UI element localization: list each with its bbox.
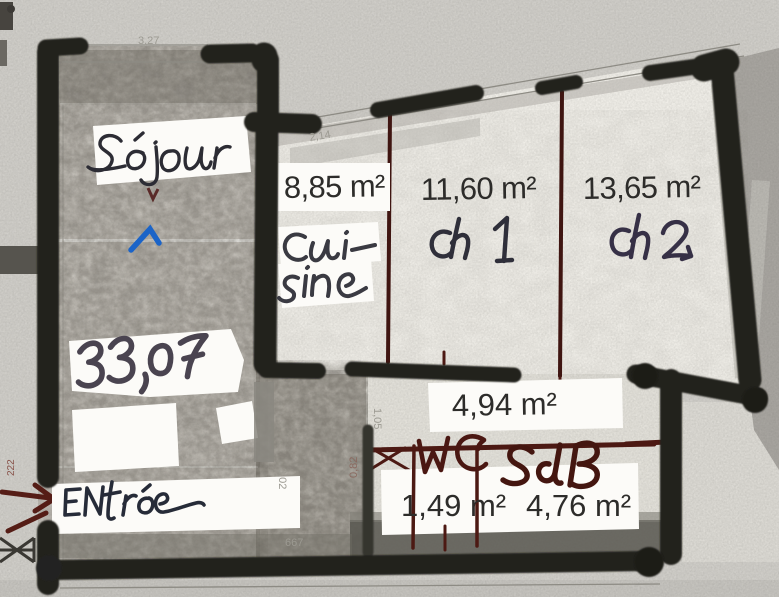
svg-text:4,94 m²: 4,94 m² [452, 386, 558, 423]
svg-text:4,76 m²: 4,76 m² [526, 488, 631, 523]
svg-text:8,85 m²: 8,85 m² [284, 168, 386, 205]
svg-text:3,27: 3,27 [138, 35, 159, 47]
svg-text:11,60 m²: 11,60 m² [421, 170, 537, 207]
svg-text:1,05: 1,05 [371, 408, 383, 429]
svg-text:0,82: 0,82 [348, 457, 360, 478]
svg-text:222: 222 [6, 459, 17, 476]
svg-text:1,49 m²: 1,49 m² [401, 488, 506, 523]
svg-text:3,02: 3,02 [276, 468, 288, 489]
svg-text:13,65 m²: 13,65 m² [583, 169, 701, 206]
svg-text:667: 667 [285, 537, 303, 549]
